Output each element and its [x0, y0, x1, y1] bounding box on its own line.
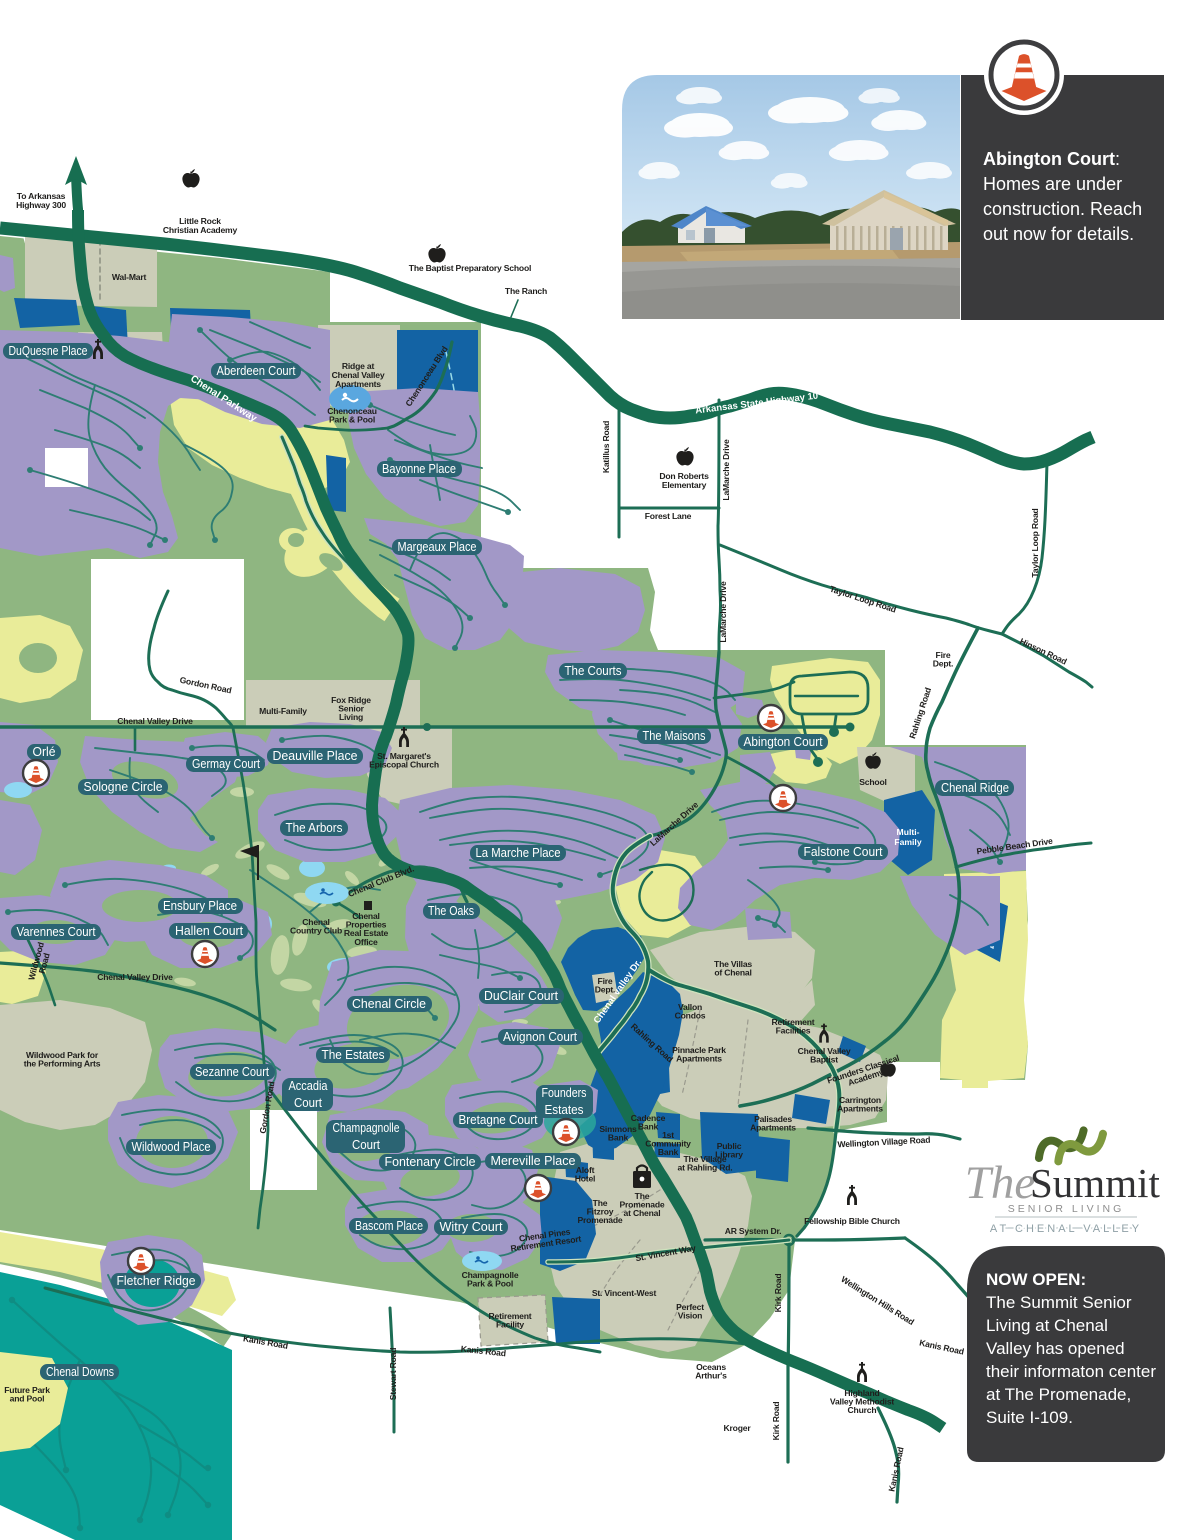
svg-text:Park & Pool: Park & Pool: [329, 415, 375, 425]
svg-text:their informaton center: their informaton center: [986, 1362, 1156, 1381]
svg-text:NOW OPEN:: NOW OPEN:: [986, 1270, 1086, 1289]
svg-text:DuQuesne Place: DuQuesne Place: [9, 344, 88, 358]
svg-text:Baptist: Baptist: [810, 1055, 838, 1065]
svg-text:Forest Lane: Forest Lane: [645, 511, 692, 521]
svg-text:The Ranch: The Ranch: [505, 286, 547, 296]
svg-text:Multi-: Multi-: [897, 827, 920, 837]
svg-text:out now for details.: out now for details.: [983, 224, 1134, 244]
svg-text:The Arbors: The Arbors: [286, 821, 343, 835]
svg-text:Aberdeen Court: Aberdeen Court: [217, 364, 296, 378]
svg-text:School: School: [859, 777, 886, 787]
svg-text:Chenal Valley Drive: Chenal Valley Drive: [117, 716, 193, 726]
svg-text:Taylor Loop Road: Taylor Loop Road: [1030, 508, 1040, 577]
svg-text:The Maisons: The Maisons: [643, 729, 706, 743]
svg-text:Apartments: Apartments: [335, 379, 381, 389]
svg-text:Hotel: Hotel: [575, 1174, 596, 1184]
svg-text:LaMarche Drive: LaMarche Drive: [721, 439, 731, 501]
svg-text:Chenal Valley Drive: Chenal Valley Drive: [97, 972, 173, 982]
svg-text:Katillus Road: Katillus Road: [601, 421, 611, 473]
svg-text:Accadia: Accadia: [289, 1079, 328, 1093]
svg-text:Living: Living: [339, 712, 363, 722]
svg-text:Orlé: Orlé: [33, 745, 56, 759]
svg-text:AT CHENAL VALLEY: AT CHENAL VALLEY: [990, 1223, 1142, 1235]
svg-text:Bank: Bank: [608, 1133, 629, 1143]
svg-text:SENIOR LIVING: SENIOR LIVING: [1008, 1203, 1125, 1215]
svg-text:Hallen Court: Hallen Court: [175, 924, 244, 938]
svg-text:Apartments: Apartments: [676, 1054, 722, 1064]
svg-text:and Pool: and Pool: [10, 1394, 45, 1404]
svg-text:Sezanne Court: Sezanne Court: [195, 1065, 269, 1079]
svg-text:La Marche Place: La Marche Place: [476, 846, 561, 860]
svg-text:Dept.: Dept.: [595, 984, 616, 994]
svg-text:Chenal Circle: Chenal Circle: [352, 997, 426, 1011]
svg-text:construction. Reach: construction. Reach: [983, 199, 1142, 219]
svg-text:Bascom Place: Bascom Place: [355, 1219, 423, 1233]
svg-text:Kirk Road: Kirk Road: [771, 1402, 781, 1441]
svg-text:Avignon Court: Avignon Court: [503, 1030, 577, 1044]
svg-text:DuClair Court: DuClair Court: [484, 989, 559, 1003]
svg-text:Office: Office: [354, 937, 378, 947]
svg-text:Arthur's: Arthur's: [695, 1371, 727, 1381]
svg-text:The Summit Senior: The Summit Senior: [986, 1293, 1132, 1312]
svg-text:Champagnolle: Champagnolle: [333, 1121, 400, 1135]
svg-text:St. Vincent-West: St. Vincent-West: [592, 1288, 657, 1298]
svg-text:Abington Court: Abington Court: [744, 735, 823, 749]
svg-text:Summit: Summit: [1030, 1160, 1160, 1206]
svg-text:Court: Court: [294, 1096, 322, 1110]
svg-text:at The Promenade,: at The Promenade,: [986, 1385, 1131, 1404]
svg-text:Living at Chenal: Living at Chenal: [986, 1316, 1108, 1335]
svg-text:Deauville Place: Deauville Place: [273, 749, 358, 763]
svg-text:The: The: [965, 1157, 1036, 1209]
svg-text:Estates: Estates: [545, 1103, 584, 1117]
svg-text:Margeaux Place: Margeaux Place: [398, 540, 477, 554]
svg-text:Wildwood Place: Wildwood Place: [132, 1140, 211, 1154]
svg-text:Fellowship Bible Church: Fellowship Bible Church: [804, 1216, 900, 1226]
svg-text:Condos: Condos: [675, 1011, 706, 1021]
svg-text:The Oaks: The Oaks: [428, 904, 474, 918]
svg-text:at Rahling Rd.: at Rahling Rd.: [678, 1162, 733, 1172]
svg-text:Apartments: Apartments: [837, 1104, 883, 1114]
svg-text:Founders: Founders: [542, 1086, 587, 1100]
svg-text:LaMarche Drive: LaMarche Drive: [718, 581, 728, 643]
svg-text:Kroger: Kroger: [724, 1423, 752, 1433]
svg-text:AR System Dr.: AR System Dr.: [725, 1226, 782, 1236]
svg-text:Highway 300: Highway 300: [16, 200, 66, 210]
svg-text:Bank: Bank: [638, 1122, 659, 1132]
svg-text:Mereville Place: Mereville Place: [491, 1154, 576, 1168]
svg-text:Dept.: Dept.: [933, 659, 954, 669]
svg-text:Chenal Downs: Chenal Downs: [46, 1365, 114, 1379]
svg-text:The Estates: The Estates: [322, 1048, 385, 1062]
svg-text:Court: Court: [352, 1138, 380, 1152]
svg-text:Vision: Vision: [678, 1311, 702, 1321]
svg-text:Family: Family: [894, 837, 921, 847]
svg-text:Promenade: Promenade: [577, 1215, 622, 1225]
svg-text:The Courts: The Courts: [565, 664, 622, 678]
svg-text:Bretagne Court: Bretagne Court: [459, 1113, 538, 1127]
svg-text:the Performing Arts: the Performing Arts: [24, 1059, 101, 1069]
svg-text:Ensbury Place: Ensbury Place: [163, 899, 237, 913]
svg-text:Christian Academy: Christian Academy: [163, 225, 238, 235]
svg-text:Abington Court:: Abington Court:: [983, 149, 1120, 169]
svg-text:Kirk Road: Kirk Road: [773, 1274, 783, 1313]
svg-text:Facilities: Facilities: [776, 1026, 811, 1036]
svg-text:Apartments: Apartments: [750, 1123, 796, 1133]
svg-text:Homes are under: Homes are under: [983, 174, 1122, 194]
svg-text:Fletcher Ridge: Fletcher Ridge: [117, 1274, 196, 1288]
svg-text:Bank: Bank: [658, 1147, 679, 1157]
svg-text:Falstone Court: Falstone Court: [804, 845, 884, 859]
svg-text:Fontenary Circle: Fontenary Circle: [385, 1155, 476, 1169]
svg-text:Park & Pool: Park & Pool: [467, 1279, 513, 1289]
svg-text:The Baptist Preparatory School: The Baptist Preparatory School: [409, 263, 531, 273]
svg-text:Facility: Facility: [496, 1320, 524, 1330]
svg-text:at Chenal: at Chenal: [624, 1208, 661, 1218]
svg-text:Wal-Mart: Wal-Mart: [112, 272, 147, 282]
svg-text:Varennes Court: Varennes Court: [17, 925, 96, 939]
svg-text:Witry Court: Witry Court: [440, 1220, 504, 1234]
svg-text:Episcopal Church: Episcopal Church: [369, 760, 439, 770]
svg-text:Elementary: Elementary: [662, 480, 707, 490]
svg-text:Bayonne Place: Bayonne Place: [382, 462, 456, 476]
svg-text:Stewart Road: Stewart Road: [388, 1348, 398, 1401]
svg-text:Country Club: Country Club: [290, 926, 342, 936]
svg-text:Germay Court: Germay Court: [192, 757, 260, 771]
svg-text:Suite I-109.: Suite I-109.: [986, 1408, 1073, 1427]
svg-text:Chenal Ridge: Chenal Ridge: [941, 781, 1009, 795]
svg-text:Church: Church: [848, 1405, 877, 1415]
svg-text:Multi-Family: Multi-Family: [259, 706, 307, 716]
svg-text:Sologne Circle: Sologne Circle: [84, 780, 163, 794]
svg-text:of Chenal: of Chenal: [714, 968, 751, 978]
svg-text:Valley has opened: Valley has opened: [986, 1339, 1125, 1358]
